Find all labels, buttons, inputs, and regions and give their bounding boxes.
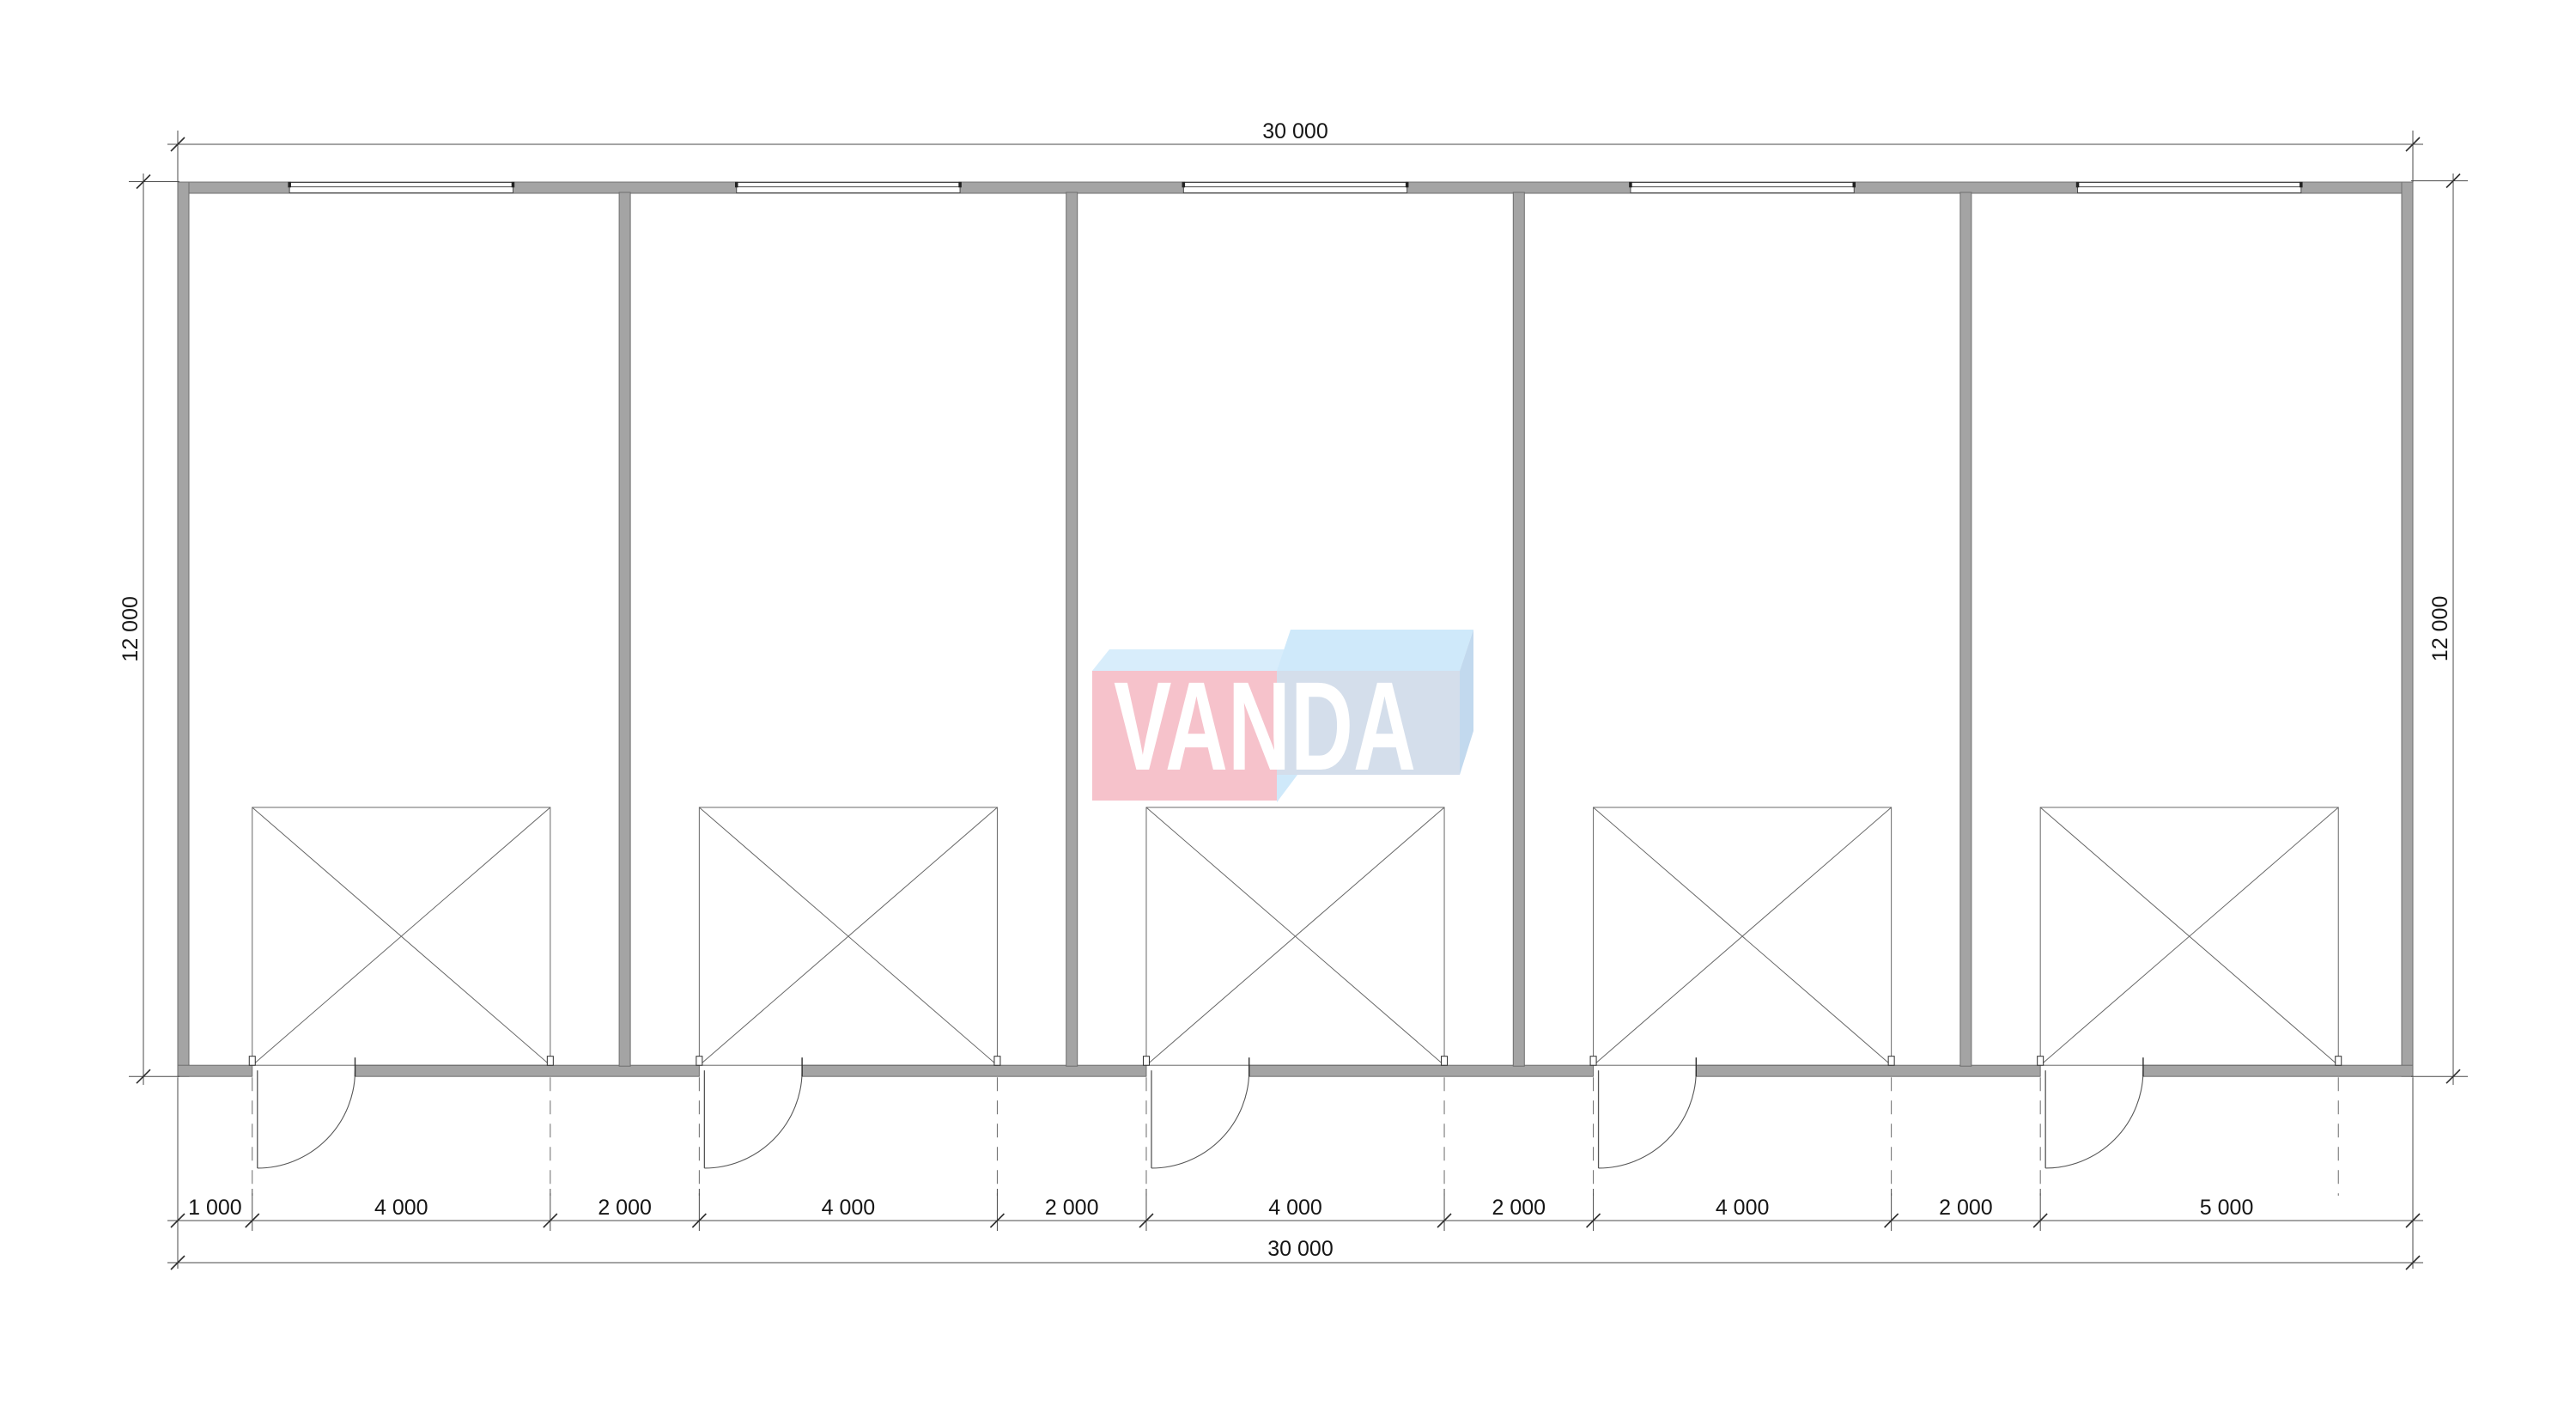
window-end-cap (2300, 182, 2302, 187)
partition-wall (1960, 192, 1971, 1066)
bottom-wall-segment (2143, 1065, 2413, 1076)
window-end-cap (289, 182, 291, 187)
door-swing-arc (1599, 1070, 1697, 1168)
dimension-label-chain: 4 000 (1268, 1196, 1322, 1220)
gate-corner-post (1143, 1057, 1149, 1066)
gate-corner-post (2038, 1057, 2044, 1066)
window-end-cap (959, 182, 962, 187)
right-wall (2402, 182, 2413, 1076)
window-end-cap (1182, 182, 1185, 187)
window (2078, 183, 2301, 193)
bottom-wall-segment (178, 1065, 252, 1076)
door-swing-arc (258, 1070, 355, 1168)
vanda-logo-watermark: VANDA (1092, 630, 1473, 802)
dimension-right-overall: 12 000 (2411, 174, 2468, 1085)
door-swing-arc (1151, 1070, 1249, 1168)
gate-corner-post (547, 1057, 553, 1066)
gate-corner-post (2336, 1057, 2342, 1066)
gate-corner-post (1888, 1057, 1894, 1066)
gate-corner-post (994, 1057, 1000, 1066)
gate-corner-post (249, 1057, 255, 1066)
gate-corner-post (1590, 1057, 1596, 1066)
door-swing-arc (704, 1070, 802, 1168)
window (1183, 183, 1406, 193)
outer-walls (178, 182, 2413, 1076)
dimension-label-right: 12 000 (2428, 596, 2452, 661)
gate-corner-post (696, 1057, 702, 1066)
left-wall (178, 182, 189, 1076)
gate-corner-post (1442, 1057, 1448, 1066)
dimension-left-overall: 12 000 (118, 174, 179, 1085)
partition-wall (1513, 192, 1524, 1066)
window (1631, 183, 1854, 193)
dimension-label-left: 12 000 (118, 596, 143, 661)
window (289, 183, 513, 193)
window (737, 183, 960, 193)
window-end-cap (1853, 182, 1856, 187)
window-end-cap (735, 182, 738, 187)
dimension-label-chain: 2 000 (1045, 1196, 1099, 1220)
dimension-label-top: 30 000 (1262, 119, 1327, 143)
partition-wall (619, 192, 630, 1066)
dimension-label-chain: 4 000 (1716, 1196, 1770, 1220)
extension-dashed-lines (252, 1077, 2338, 1196)
dimension-label-chain: 2 000 (1939, 1196, 1993, 1220)
dimension-label-chain: 2 000 (598, 1196, 652, 1220)
window-end-cap (512, 182, 514, 187)
window-end-cap (2076, 182, 2079, 187)
dimension-label-chain: 4 000 (822, 1196, 876, 1220)
door-swing-arc (2045, 1070, 2143, 1168)
window-end-cap (1629, 182, 1631, 187)
partition-wall (1066, 192, 1078, 1066)
bottom-wall-segment (355, 1065, 700, 1076)
bottom-wall-segment (802, 1065, 1146, 1076)
floor-plan-svg: 30 0001 0004 0002 0004 0002 0004 0002 00… (0, 0, 2576, 1425)
partition-walls (619, 192, 1971, 1066)
dimension-label-chain: 1 000 (188, 1196, 242, 1220)
logo-text: VANDA (1114, 656, 1416, 797)
dimension-label-bottom: 30 000 (1267, 1237, 1333, 1261)
floor-plan-page: 30 0001 0004 0002 0004 0002 0004 0002 00… (0, 0, 2576, 1425)
dimension-bottom-overall: 30 000 (167, 1237, 2423, 1270)
dimension-label-chain: 2 000 (1492, 1196, 1546, 1220)
dimension-top-overall: 30 000 (167, 119, 2423, 182)
window-end-cap (1406, 182, 1408, 187)
gate-zones (249, 807, 2341, 1065)
dimension-label-chain: 4 000 (374, 1196, 428, 1220)
bottom-wall-segment (1249, 1065, 1594, 1076)
bottom-wall-segment (1696, 1065, 2040, 1076)
dimension-label-chain: 5 000 (2200, 1196, 2254, 1220)
